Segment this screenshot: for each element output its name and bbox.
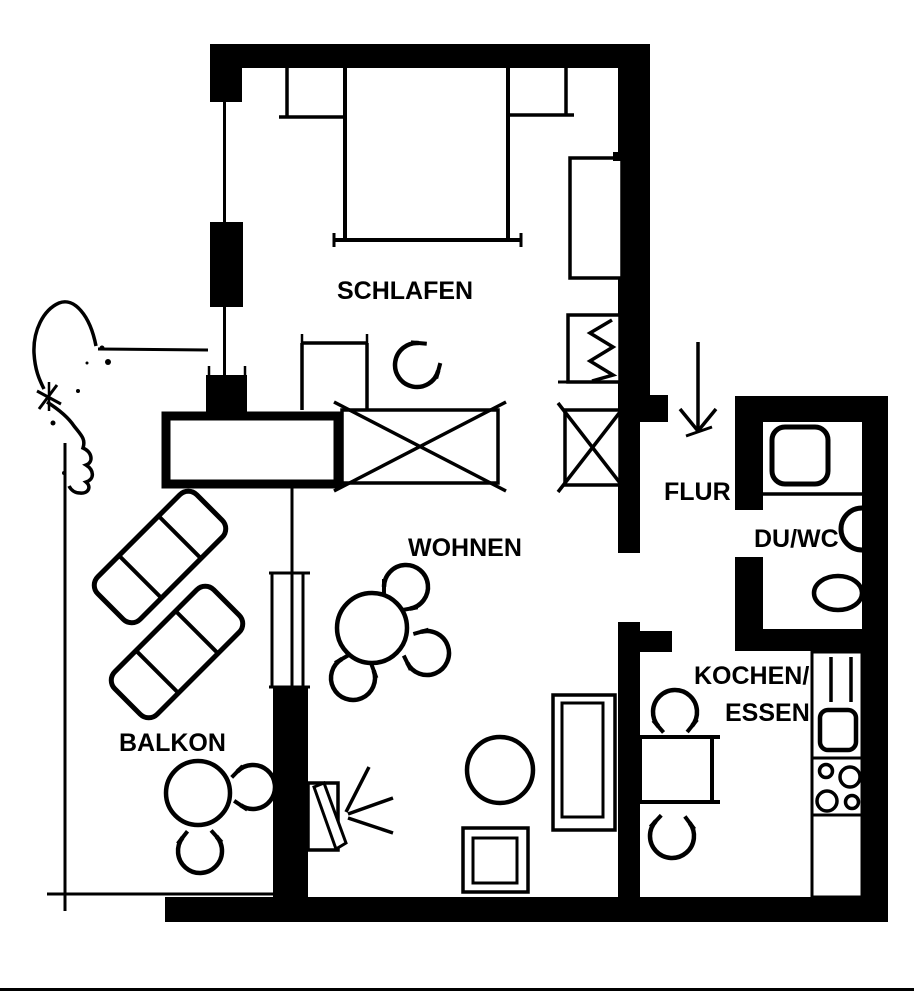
room-label-flur: FLUR [664, 478, 731, 506]
window-mullion-low [206, 375, 247, 413]
wall-nw-corner-pier [210, 44, 242, 102]
wall-entrance-pier [618, 395, 668, 422]
wall-kitchen-west [618, 622, 640, 897]
page-bottom-rule [0, 988, 914, 991]
bathroom-fixtures [763, 427, 862, 610]
side-table-square [463, 828, 528, 892]
shelf [558, 315, 620, 382]
room-label-essen: ESSEN [725, 699, 810, 727]
room-label-kochen: KOCHEN/ [694, 662, 809, 690]
nightstand-left [279, 68, 345, 117]
tv-ray [348, 818, 393, 833]
room-label-balkon: BALKON [119, 729, 226, 757]
wall-duwc-west-lower [735, 557, 763, 633]
room-label-du-wc: DU/WC [754, 525, 839, 553]
chair-icon [653, 690, 698, 733]
desk [570, 152, 623, 278]
tv-ray [348, 798, 393, 814]
pointer-line [98, 349, 208, 350]
wardrobe-long [334, 402, 506, 491]
washbasin [841, 508, 862, 550]
tv-ray [346, 767, 369, 812]
entrance-arrow-icon [680, 342, 716, 436]
living-furniture [308, 556, 615, 892]
wall-balcony-door-pier [273, 688, 308, 897]
nightstand-right [508, 68, 574, 115]
wall-duwc-west-upper [735, 422, 763, 510]
window-mullion-mid [210, 222, 243, 307]
wall-south [165, 897, 888, 922]
room-label-wohnen: WOHNEN [408, 534, 522, 562]
chair-icon [231, 763, 278, 811]
balcony-table-round [166, 761, 230, 825]
chair-icon [177, 830, 222, 874]
chair-icon [386, 335, 446, 395]
kitchen-table [632, 737, 720, 802]
bed [334, 68, 521, 247]
tv [308, 767, 393, 850]
chair-icon [649, 815, 695, 859]
bedroom-furniture [279, 68, 623, 410]
floor-plan-canvas: SCHLAFEN WOHNEN FLUR DU/WC KOCHEN/ ESSEN… [0, 0, 914, 1000]
wall-kitchen-west-stub [640, 631, 672, 652]
floor-plan: SCHLAFEN WOHNEN FLUR DU/WC KOCHEN/ ESSEN… [0, 0, 914, 1000]
kitchen-counter [812, 652, 862, 897]
balcony-furniture [89, 486, 277, 873]
wardrobe-small [558, 403, 627, 492]
wall-duwc-south [735, 629, 862, 651]
wall-north [210, 44, 650, 68]
sofa [553, 695, 615, 830]
sideboard [166, 416, 338, 484]
dining-table-round [337, 593, 407, 663]
divider-furniture [166, 402, 627, 492]
dressing-table [302, 334, 367, 410]
armchair-round [467, 737, 533, 803]
toilet [814, 576, 862, 610]
shower [772, 427, 828, 484]
wall-east [862, 396, 888, 897]
room-label-schlafen: SCHLAFEN [337, 277, 473, 305]
